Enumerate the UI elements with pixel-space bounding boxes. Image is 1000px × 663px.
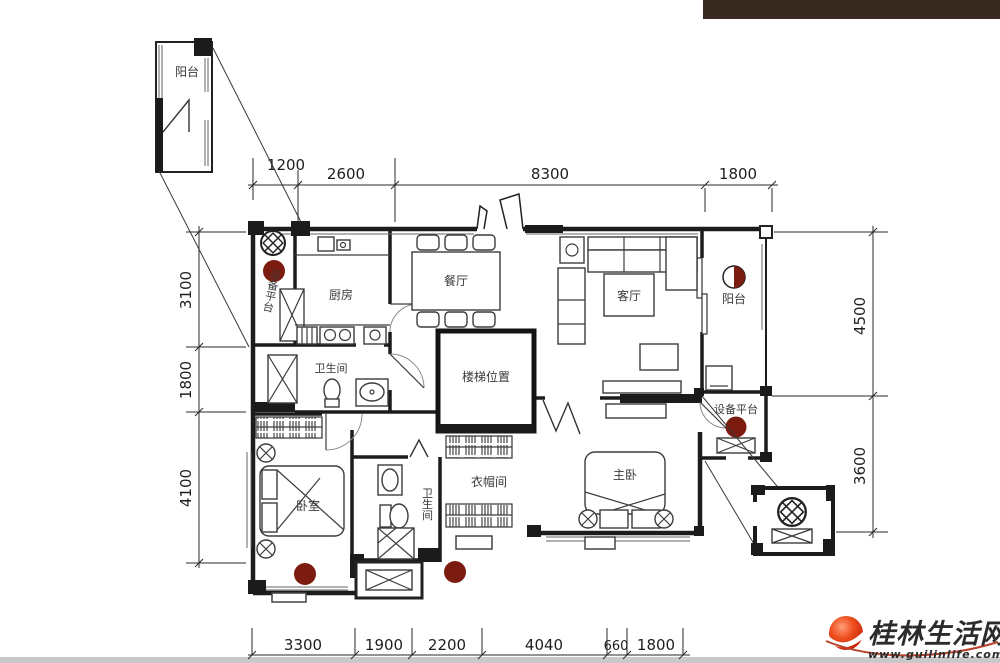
dim-left-2: 4100 [177,469,195,507]
watermark-site-name: 桂林生活网 [868,619,1000,650]
master-bedroom: 主卧 [579,452,673,528]
half-circle-marker [734,266,745,288]
dim-left: 3100 1800 4100 [177,226,246,568]
fan-icon-left [261,231,285,255]
dim-bottom-0: 3300 [284,636,322,654]
dining: 餐厅 [412,235,500,327]
bedroom-label: 卧室 [296,498,320,513]
dim-top-2: 8300 [531,165,569,183]
dim-bottom-2: 2200 [428,636,466,654]
shaft-bump [356,562,422,598]
detached-room-bottom-right [751,485,835,555]
dim-top-0: 1200 [267,156,305,174]
bedroom: 卧室 [257,444,344,558]
dim-top-1: 2600 [327,165,365,183]
dim-bottom-3: 4040 [525,636,563,654]
dim-right-0: 4500 [851,297,869,335]
watermark: 桂林生活网 www.guilinlife.com [826,616,1000,661]
watermark-site-url: www.guilinlife.com [868,648,1000,661]
red-marker [726,417,747,438]
kitchen: 厨房 [295,237,390,344]
equipment-right-label: 设备平台 [714,402,758,416]
balcony-top-left: 阳台 [156,38,212,172]
living-label: 客厅 [617,288,641,303]
bottom-strip [0,657,1000,663]
stairs: 楼梯位置 [438,331,534,433]
dim-bottom-1: 1900 [365,636,403,654]
living: 客厅 [558,237,697,418]
closet-label: 衣帽间 [471,474,507,489]
dim-left-1: 1800 [177,361,195,399]
fan-icon-right [778,498,806,526]
floorplan-page: 阳台 [0,0,1000,663]
kitchen-label: 厨房 [329,287,353,302]
master-bedroom-label: 主卧 [613,468,637,482]
stairs-label: 楼梯位置 [462,369,510,384]
balcony-right-label: 阳台 [722,291,746,306]
balcony-right: 阳台 [722,266,746,306]
dim-left-0: 3100 [177,271,195,309]
dim-bottom: 3300 1900 2200 4040 660 1800 [248,628,690,659]
red-marker [444,561,466,583]
dim-right-1: 3600 [851,447,869,485]
bathroom-main: 卫生间 [268,355,388,407]
dim-top-3: 1800 [719,165,757,183]
dining-label: 餐厅 [444,273,468,288]
bathroom-second: 卫生间 [378,465,434,559]
dim-bottom-5: 1800 [637,636,675,654]
bathroom-main-label: 卫生间 [315,361,348,375]
dim-bottom-4: 660 [604,639,629,654]
header-bar [703,0,1000,19]
balcony-top-label: 阳台 [175,64,199,79]
bathroom-second-label: 卫生间 [421,488,434,522]
floorplan-drawing: 阳台 [0,0,1000,663]
red-marker [294,563,316,585]
entry-door [477,194,523,229]
